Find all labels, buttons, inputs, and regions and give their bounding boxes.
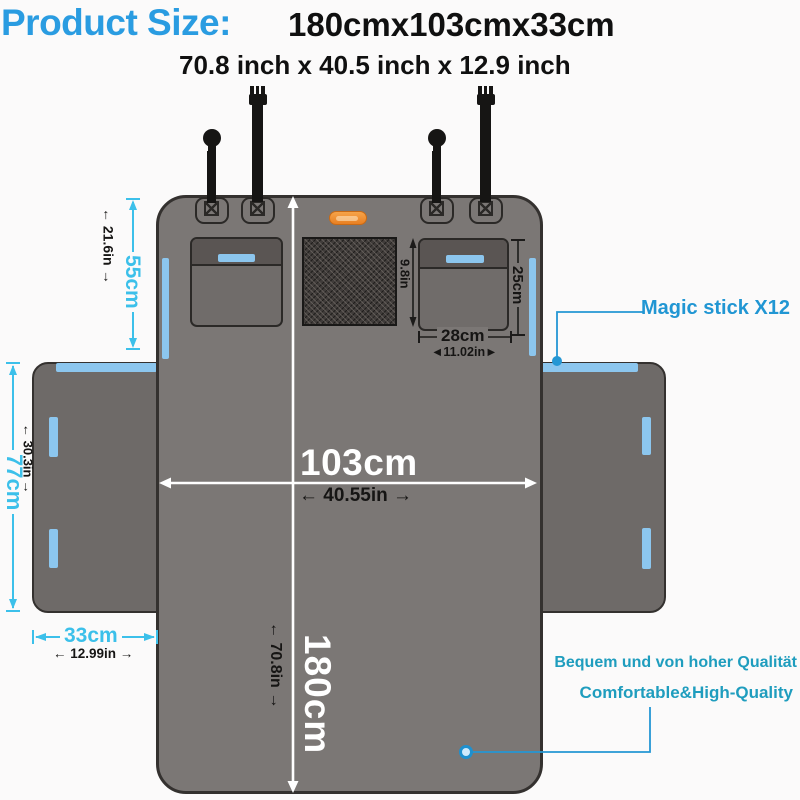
quality-callout-line [461,707,651,758]
width-cm-label: 103cm [300,444,418,483]
page-title: Product Size: [1,2,231,44]
pocket-height-in-label: 21.6in [101,208,116,283]
mesh-height-in-label: 9.8in [398,259,412,289]
length-cm-label: 180cm [297,634,336,754]
dimension-overlay [0,0,800,800]
pocket-height-cm-label: 55cm [120,252,144,312]
length-in-label: 70.8in [266,622,283,708]
magic-stick-callout-line [552,312,644,366]
magic-stick-label: Magic stick X12 [641,298,790,319]
side-pocket-width-cm-label: 28cm [437,327,488,345]
flap-width-in-label: 12.99in [53,647,133,661]
product-size-diagram: Product Size: 180cmx103cmx33cm 70.8 inch… [0,0,800,800]
side-pocket-height-cm-label: 25cm [509,263,525,307]
quality-label-german: Bequem und von hoher Qualität [554,655,797,672]
width-in-label: 40.55in [299,486,412,506]
size-inch-text: 70.8 inch x 40.5 inch x 12.9 inch [179,50,571,81]
size-cm-text: 180cmx103cmx33cm [288,6,615,44]
side-pocket-width-in-label: 11.02in [431,346,497,359]
flap-height-in-label: 30.3in [21,424,35,494]
flap-width-cm-label: 33cm [60,625,122,647]
quality-label-english: Comfortable&High-Quality [580,684,793,702]
